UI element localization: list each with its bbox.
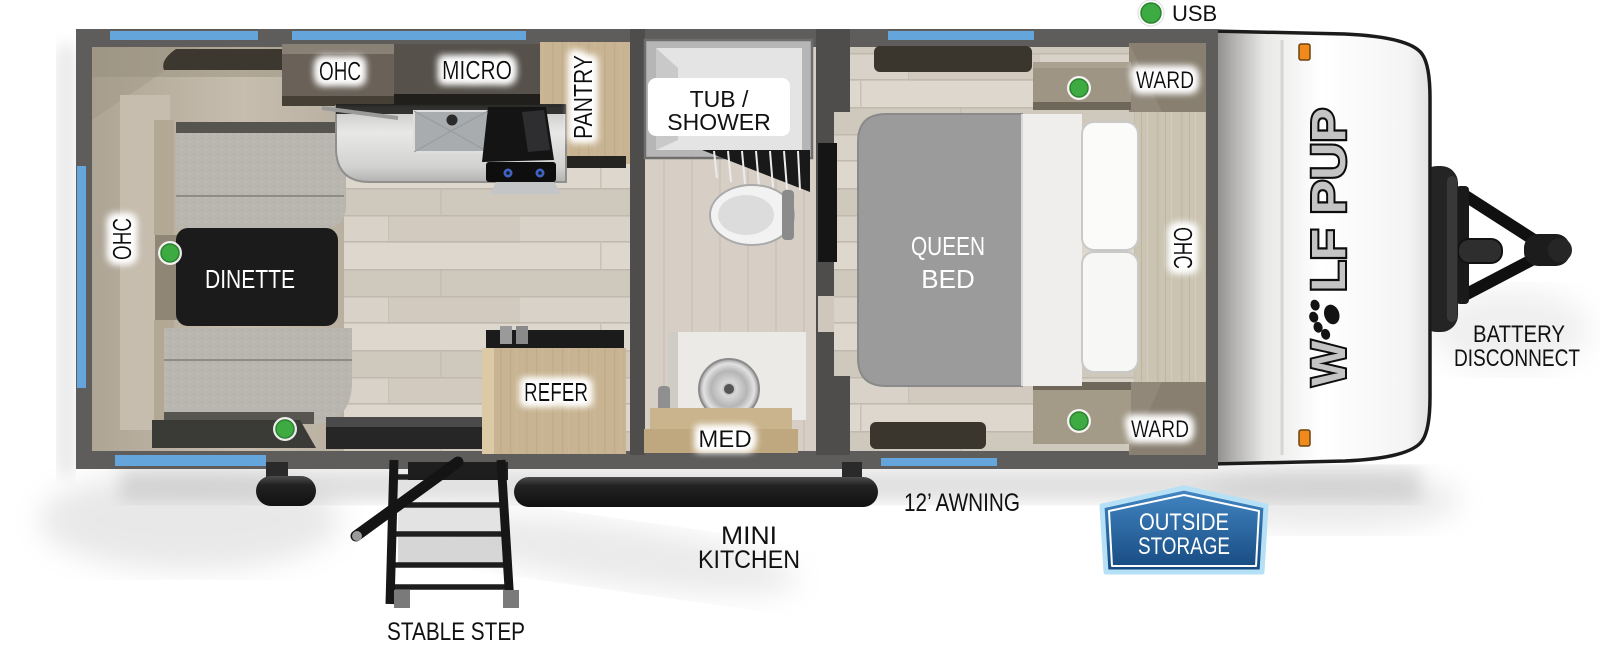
svg-text:BATTERY: BATTERY	[1473, 321, 1565, 348]
svg-text:WARD: WARD	[1131, 416, 1189, 443]
svg-text:KITCHEN: KITCHEN	[698, 546, 800, 574]
svg-text:OUTSIDE: OUTSIDE	[1139, 509, 1229, 536]
svg-text:DINETTE: DINETTE	[205, 264, 295, 294]
svg-text:QUEEN: QUEEN	[911, 231, 985, 261]
svg-text:W: W	[1303, 340, 1356, 386]
svg-text:WARD: WARD	[1136, 67, 1194, 94]
svg-text:OHC: OHC	[107, 218, 137, 260]
svg-text:PANTRY: PANTRY	[568, 55, 598, 139]
svg-text:REFER: REFER	[524, 377, 588, 407]
svg-text:MICRO: MICRO	[442, 55, 512, 85]
svg-text:BED: BED	[921, 264, 974, 294]
svg-text:MED: MED	[698, 426, 751, 453]
svg-text:OHC: OHC	[1168, 227, 1198, 269]
svg-text:12’ AWNING: 12’ AWNING	[904, 489, 1020, 517]
svg-text:LF PUP: LF PUP	[1303, 108, 1356, 292]
svg-text:OHC: OHC	[319, 56, 361, 86]
svg-text:STABLE STEP: STABLE STEP	[387, 618, 525, 646]
svg-text:STORAGE: STORAGE	[1138, 533, 1230, 560]
svg-text:SHOWER: SHOWER	[667, 109, 771, 135]
svg-text:DISCONNECT: DISCONNECT	[1454, 345, 1580, 372]
svg-text:USB: USB	[1172, 1, 1217, 26]
